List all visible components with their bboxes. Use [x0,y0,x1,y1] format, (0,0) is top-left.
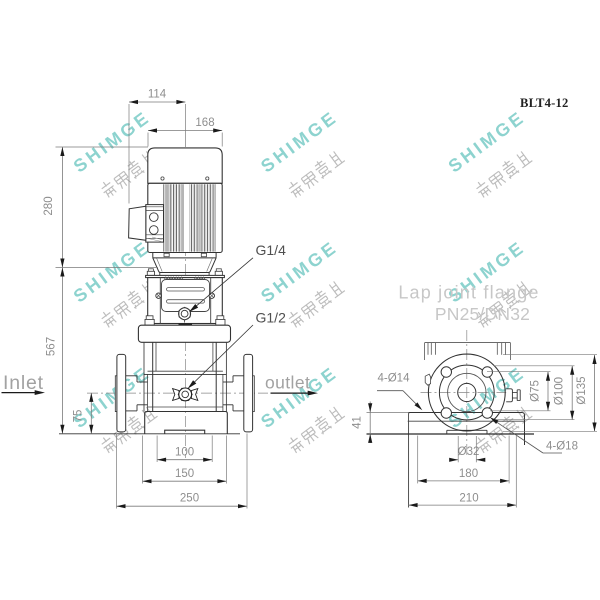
svg-text:4-Ø18: 4-Ø18 [546,441,578,453]
svg-text:G1/4: G1/4 [256,242,287,258]
svg-text:Ø100: Ø100 [554,377,566,405]
svg-text:G1/2: G1/2 [256,310,287,326]
svg-text:Inlet: Inlet [3,372,44,394]
svg-text:100: 100 [175,447,194,459]
svg-text:180: 180 [459,468,478,480]
svg-text:Ø75: Ø75 [530,380,542,402]
svg-text:Ø135: Ø135 [576,376,588,404]
svg-text:4-Ø14: 4-Ø14 [378,373,411,385]
svg-text:567: 567 [46,337,58,356]
svg-text:BLT4-12: BLT4-12 [520,96,569,110]
svg-text:114: 114 [148,89,167,101]
svg-text:Lap joint flange: Lap joint flange [398,283,539,303]
svg-text:outlet: outlet [265,373,310,393]
svg-text:280: 280 [43,196,55,215]
svg-text:75: 75 [73,410,85,423]
svg-text:150: 150 [175,468,194,480]
svg-text:41: 41 [352,416,364,429]
svg-text:250: 250 [180,493,199,505]
svg-text:168: 168 [195,117,214,129]
svg-text:PN25/DN32: PN25/DN32 [435,304,530,324]
svg-text:210: 210 [459,493,478,505]
